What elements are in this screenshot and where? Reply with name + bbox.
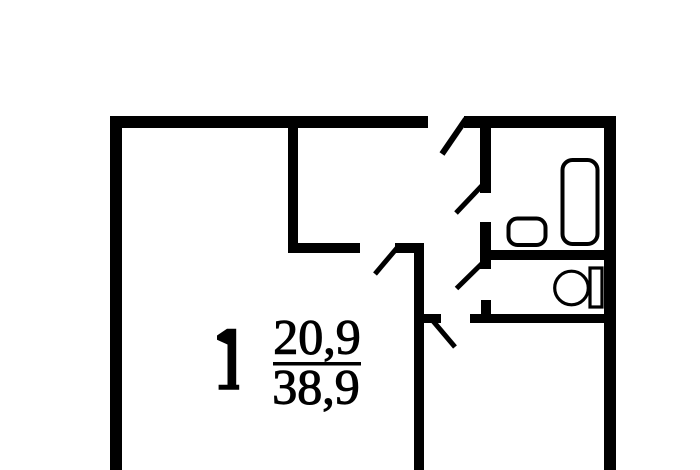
svg-text:38,9: 38,9 — [272, 359, 360, 415]
svg-text:20,9: 20,9 — [273, 309, 361, 365]
